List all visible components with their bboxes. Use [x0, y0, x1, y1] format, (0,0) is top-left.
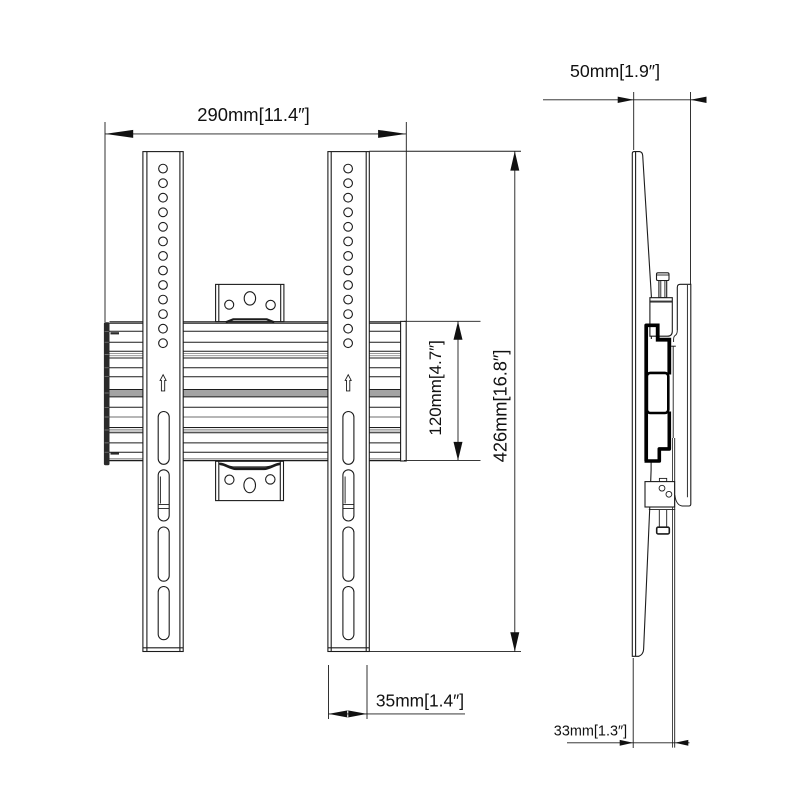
svg-text:120mm[4.7″]: 120mm[4.7″]	[426, 340, 445, 435]
svg-text:290mm[11.4″]: 290mm[11.4″]	[197, 104, 309, 125]
svg-text:50mm[1.9″]: 50mm[1.9″]	[570, 61, 660, 81]
svg-text:33mm[1.3″]: 33mm[1.3″]	[554, 724, 627, 740]
svg-text:426mm[16.8″]: 426mm[16.8″]	[490, 350, 510, 463]
svg-text:35mm[1.4″]: 35mm[1.4″]	[376, 690, 464, 710]
